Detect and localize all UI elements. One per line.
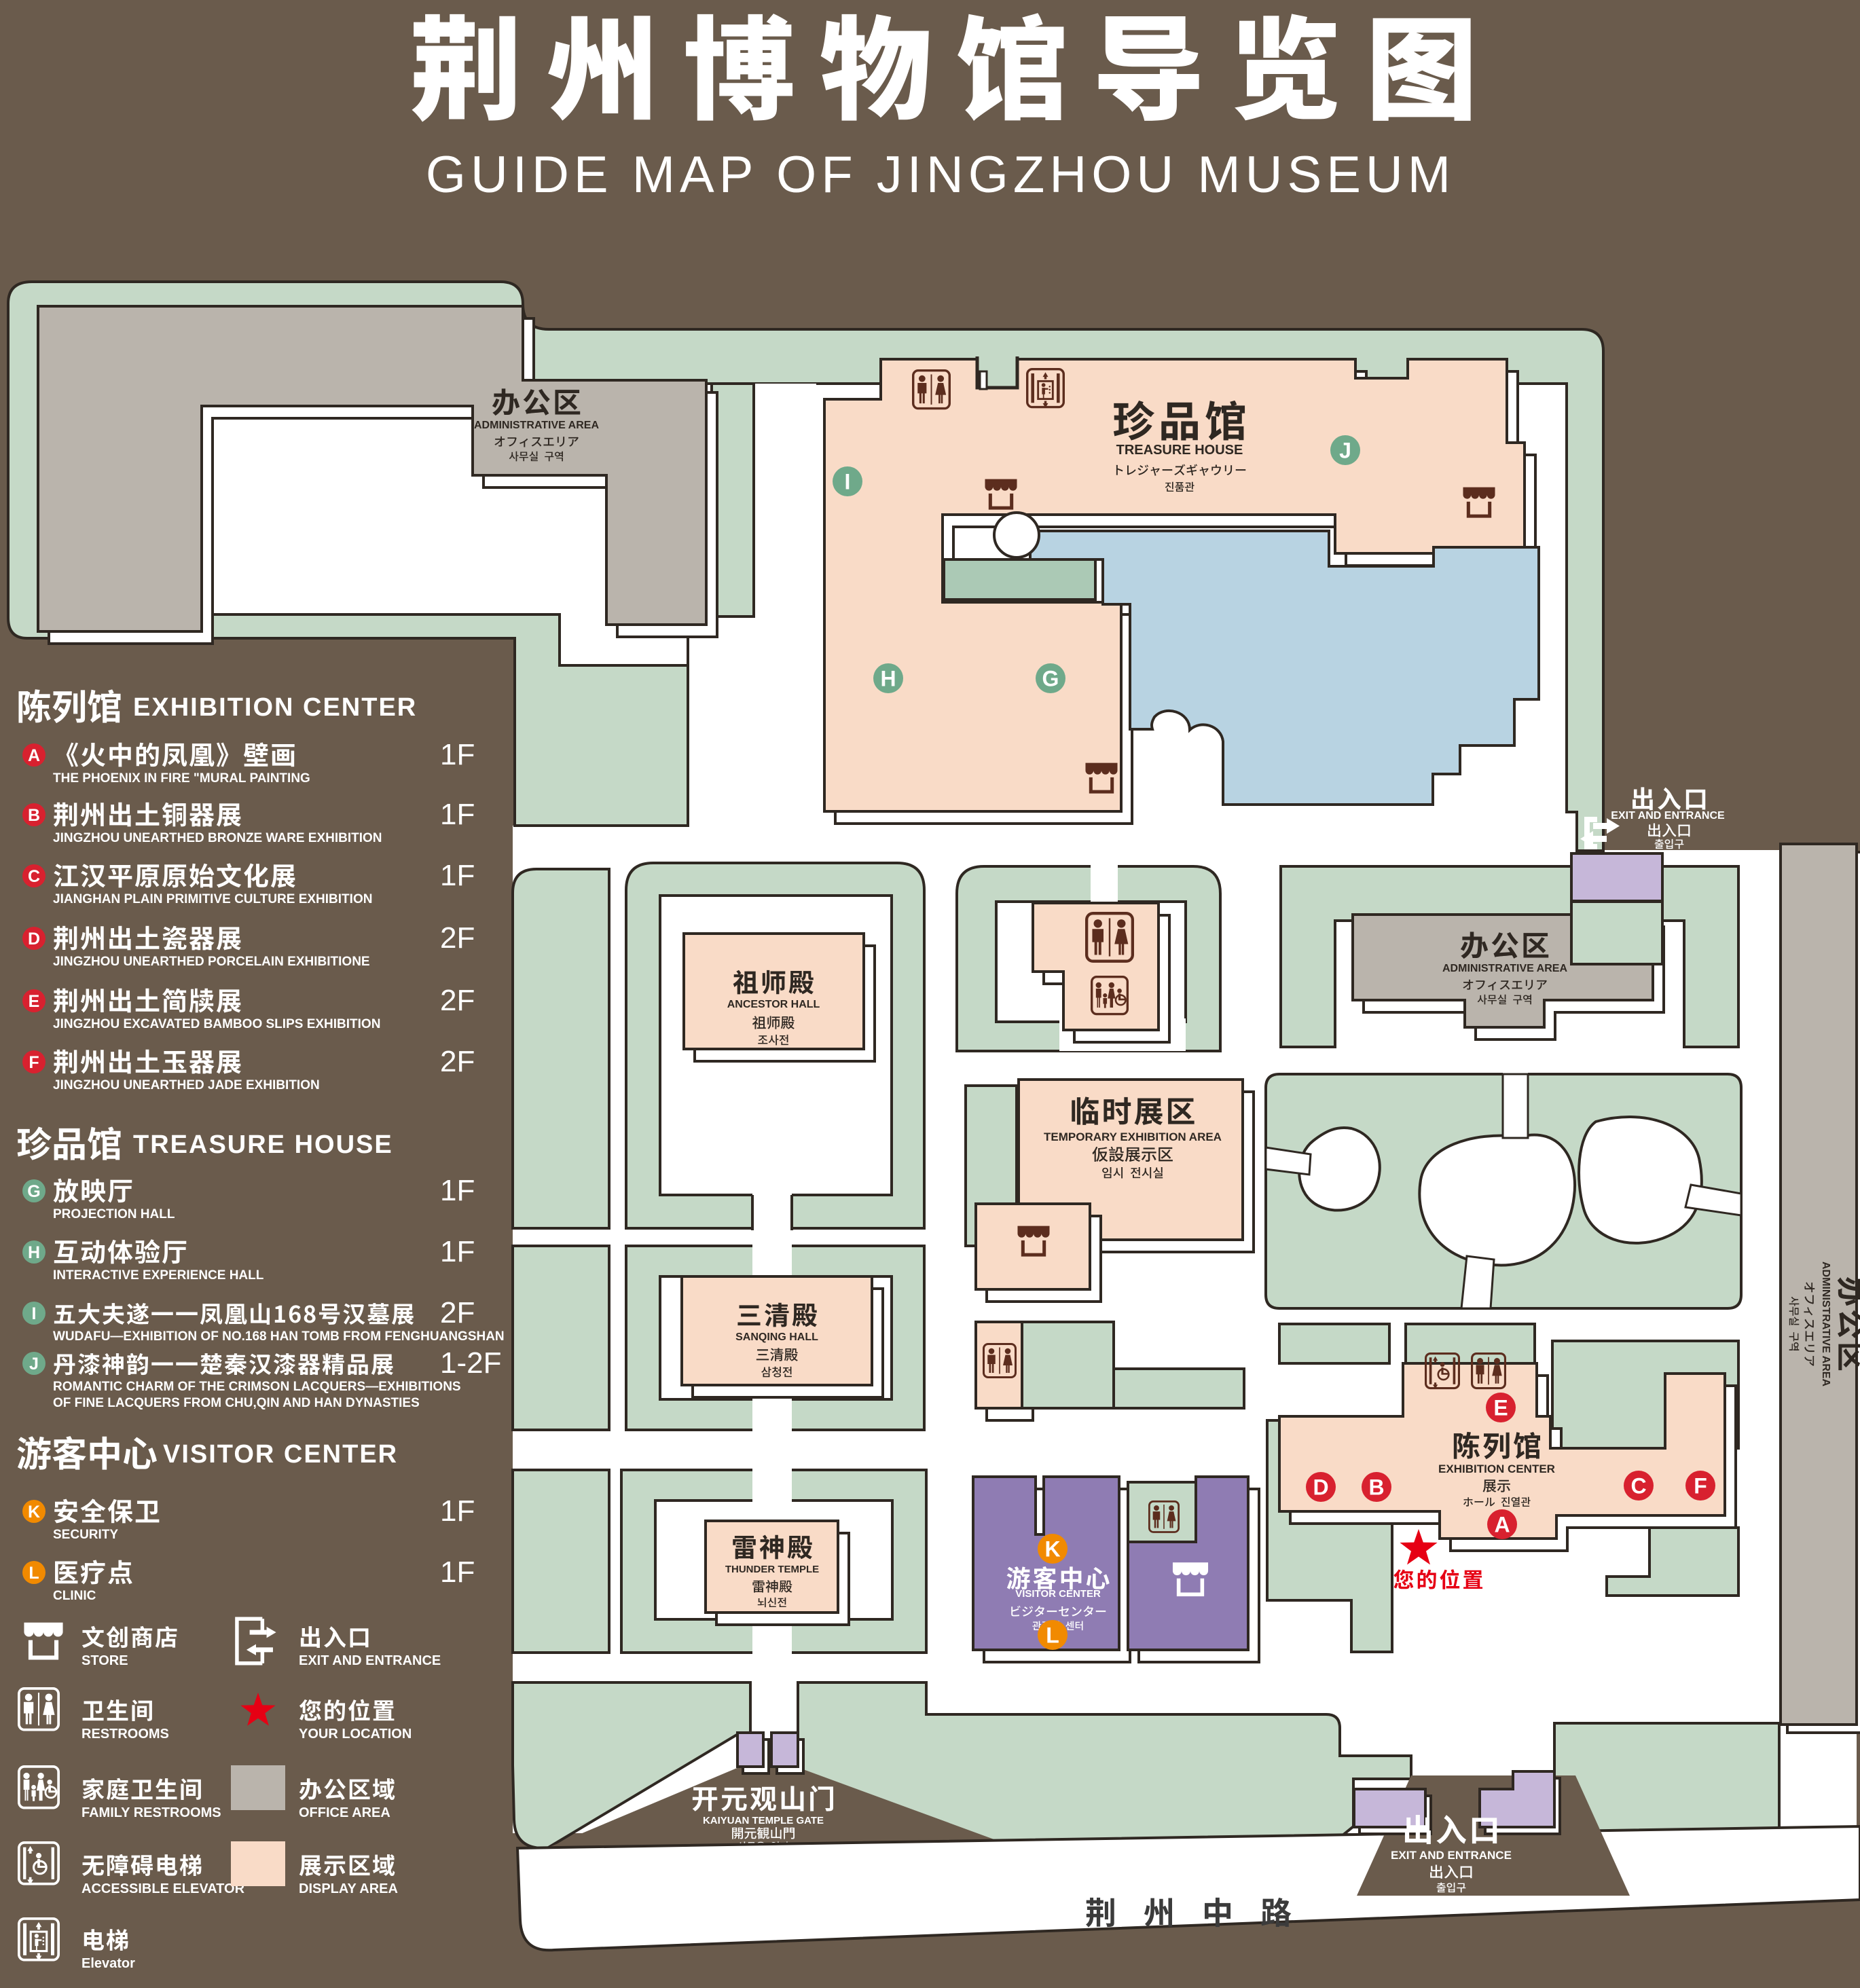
svg-text:E: E: [1493, 1396, 1508, 1420]
svg-text:B: B: [28, 806, 40, 825]
svg-text:C: C: [1630, 1474, 1646, 1498]
svg-text:1F: 1F: [440, 1174, 475, 1207]
svg-text:JINGZHOU EXCAVATED BAMBOO SLIP: JINGZHOU EXCAVATED BAMBOO SLIPS EXHIBITI…: [53, 1017, 380, 1031]
svg-text:INTERACTIVE EXPERIENCE HALL: INTERACTIVE EXPERIENCE HALL: [53, 1268, 264, 1283]
svg-text:ROMANTIC CHARM OF THE CRIMSON: ROMANTIC CHARM OF THE CRIMSON LACQUERS—E…: [53, 1380, 461, 1394]
svg-text:YOUR LOCATION: YOUR LOCATION: [299, 1727, 412, 1742]
svg-text:STORE: STORE: [81, 1653, 128, 1668]
svg-text:EXIT AND ENTRANCE: EXIT AND ENTRANCE: [299, 1653, 441, 1668]
svg-text:F: F: [29, 1053, 39, 1072]
svg-text:SANQING HALL: SANQING HALL: [735, 1331, 818, 1343]
svg-text:2F: 2F: [440, 921, 475, 955]
svg-text:K: K: [28, 1503, 40, 1522]
svg-text:1F: 1F: [440, 1556, 475, 1589]
svg-text:VISITOR CENTER: VISITOR CENTER: [163, 1440, 398, 1469]
svg-text:THUNDER TEMPLE: THUNDER TEMPLE: [725, 1564, 819, 1575]
svg-text:FAMILY RESTROOMS: FAMILY RESTROOMS: [81, 1805, 221, 1820]
svg-text:2F: 2F: [440, 984, 475, 1017]
svg-text:OF FINE LACQUERS FROM CHU,QIN: OF FINE LACQUERS FROM CHU,QIN AND HAN DY…: [53, 1396, 420, 1410]
svg-text:JINGZHOU UNEARTHED JADE EXHIBI: JINGZHOU UNEARTHED JADE EXHIBITION: [53, 1078, 320, 1092]
svg-text:Elevator: Elevator: [81, 1956, 135, 1971]
svg-text:D: D: [28, 929, 40, 949]
svg-text:THE PHOENIX IN FIRE "MURAL PAI: THE PHOENIX IN FIRE "MURAL PAINTING: [53, 771, 310, 786]
svg-text:1-2F: 1-2F: [440, 1346, 501, 1380]
svg-text:JINGZHOU UNEARTHED BRONZE WARE: JINGZHOU UNEARTHED BRONZE WARE EXHIBITIO…: [53, 831, 382, 845]
svg-text:I: I: [845, 470, 851, 494]
svg-text:TREASURE HOUSE: TREASURE HOUSE: [1116, 443, 1243, 458]
svg-text:EXHIBITION CENTER: EXHIBITION CENTER: [1438, 1462, 1555, 1475]
svg-text:CLINIC: CLINIC: [53, 1589, 96, 1603]
svg-text:F: F: [1694, 1474, 1707, 1498]
svg-text:2F: 2F: [440, 1045, 475, 1078]
svg-text:D: D: [1313, 1475, 1328, 1500]
svg-text:ANCESTOR HALL: ANCESTOR HALL: [727, 999, 820, 1010]
svg-text:KAIYUAN TEMPLE GATE: KAIYUAN TEMPLE GATE: [703, 1815, 824, 1826]
svg-text:SECURITY: SECURITY: [53, 1528, 118, 1542]
svg-text:1F: 1F: [440, 1235, 475, 1268]
svg-text:ADMINISTRATIVE AREA: ADMINISTRATIVE AREA: [1820, 1262, 1831, 1386]
svg-text:1F: 1F: [440, 1494, 475, 1528]
svg-text:G: G: [1042, 667, 1059, 691]
svg-text:2F: 2F: [440, 1296, 475, 1329]
svg-text:L: L: [29, 1564, 39, 1583]
svg-text:H: H: [880, 667, 896, 691]
svg-text:1F: 1F: [440, 798, 475, 831]
svg-text:DISPLAY AREA: DISPLAY AREA: [299, 1881, 398, 1896]
svg-text:A: A: [1494, 1513, 1510, 1537]
svg-text:ADMINISTRATIVE AREA: ADMINISTRATIVE AREA: [1442, 963, 1567, 974]
svg-text:H: H: [28, 1243, 40, 1262]
svg-text:ACCESSIBLE ELEVATOR: ACCESSIBLE ELEVATOR: [81, 1881, 245, 1896]
svg-text:J: J: [29, 1355, 39, 1374]
svg-text:K: K: [1044, 1537, 1060, 1562]
svg-text:OFFICE AREA: OFFICE AREA: [299, 1805, 390, 1820]
svg-text:B: B: [1368, 1475, 1384, 1500]
svg-text:L: L: [1046, 1623, 1059, 1648]
svg-text:EXIT AND ENTRANCE: EXIT AND ENTRANCE: [1391, 1849, 1512, 1862]
svg-text:E: E: [29, 992, 40, 1011]
svg-text:G: G: [27, 1182, 40, 1201]
svg-text:GUIDE MAP OF JINGZHOU MUSEUM: GUIDE MAP OF JINGZHOU MUSEUM: [426, 146, 1455, 204]
svg-text:WUDAFU—EXHIBITION OF NO.168 HA: WUDAFU—EXHIBITION OF NO.168 HAN TOMB FRO…: [53, 1329, 505, 1344]
svg-text:EXIT AND ENTRANCE: EXIT AND ENTRANCE: [1611, 810, 1725, 822]
svg-text:JIANGHAN PLAIN PRIMITIVE CULTU: JIANGHAN PLAIN PRIMITIVE CULTURE EXHIBIT…: [53, 892, 372, 906]
svg-text:I: I: [32, 1304, 37, 1323]
svg-text:PROJECTION HALL: PROJECTION HALL: [53, 1207, 175, 1221]
svg-text:ADMINISTRATIVE AREA: ADMINISTRATIVE AREA: [474, 420, 599, 431]
svg-text:RESTROOMS: RESTROOMS: [81, 1727, 169, 1742]
svg-text:JINGZHOU UNEARTHED PORCELAIN E: JINGZHOU UNEARTHED PORCELAIN EXHIBITIONE: [53, 955, 370, 969]
svg-text:TEMPORARY EXHIBITION AREA: TEMPORARY EXHIBITION AREA: [1044, 1130, 1222, 1143]
svg-text:TREASURE HOUSE: TREASURE HOUSE: [133, 1130, 393, 1159]
svg-text:EXHIBITION CENTER: EXHIBITION CENTER: [133, 693, 417, 722]
svg-text:1F: 1F: [440, 738, 475, 771]
svg-text:J: J: [1339, 439, 1351, 463]
svg-text:VISITOR CENTER: VISITOR CENTER: [1015, 1588, 1101, 1600]
svg-text:A: A: [28, 746, 40, 765]
svg-text:1F: 1F: [440, 859, 475, 892]
svg-text:C: C: [28, 867, 40, 886]
